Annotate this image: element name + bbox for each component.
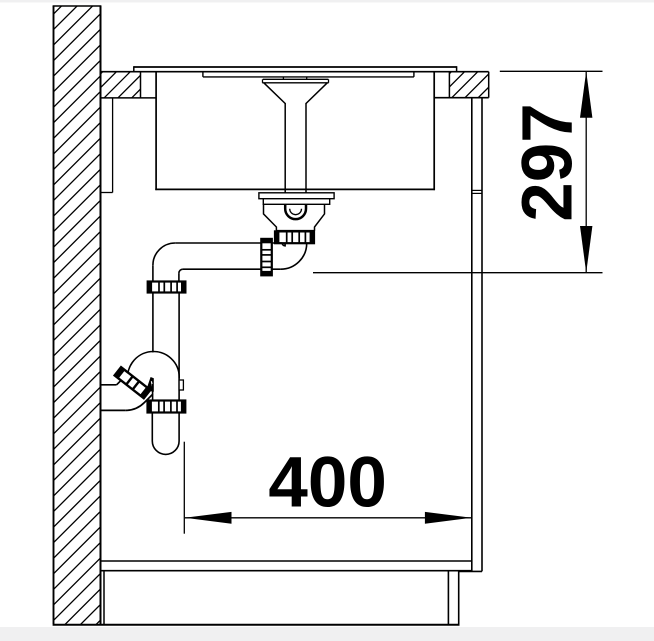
svg-text:297: 297 [509, 103, 588, 221]
svg-text:400: 400 [268, 444, 386, 523]
